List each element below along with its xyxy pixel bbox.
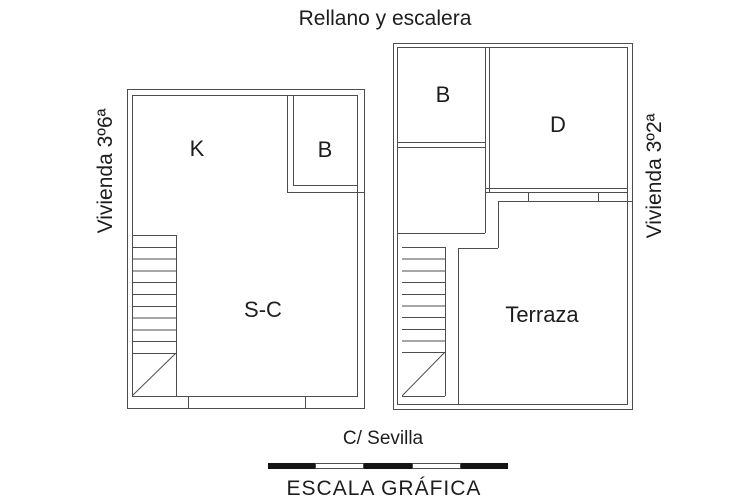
left-livingroom-label: S-C xyxy=(223,297,303,323)
left-unit-name: Vivienda 3º6ª xyxy=(94,96,118,246)
right-staircase-landing-bottom xyxy=(402,396,445,397)
left-staircase-diagonal xyxy=(132,353,176,396)
terrace-step-vertical xyxy=(498,201,499,248)
right-bath-label: B xyxy=(413,82,473,108)
left-bottom-wall-tick xyxy=(305,396,306,408)
left-staircase-side xyxy=(176,235,177,396)
right-bath-floor-inner xyxy=(397,147,485,148)
left-bath-floor-outer xyxy=(287,192,364,193)
d-room-floor-inner xyxy=(485,188,627,189)
right-staircase-side xyxy=(445,247,446,396)
left-kitchen-label: K xyxy=(167,136,227,162)
left-bath-floor-inner xyxy=(293,185,357,186)
scale-bar-segment-filled xyxy=(461,463,508,469)
right-partition-wall-outer xyxy=(485,47,486,233)
terrace-step-horizontal xyxy=(458,248,498,249)
left-staircase-steps xyxy=(132,235,176,354)
scale-bar-segment-filled xyxy=(268,463,315,469)
right-staircase-steps xyxy=(402,247,445,353)
right-staircase-diagonal xyxy=(402,352,445,396)
right-partition-wall-inner xyxy=(489,47,490,192)
scale-bar-segment-open xyxy=(315,463,364,469)
left-bath-wall-outer xyxy=(287,95,288,193)
scale-bar-segment-filled xyxy=(364,463,411,469)
d-room-floor-outer xyxy=(485,192,627,193)
terrace-label: Terraza xyxy=(482,302,602,328)
terrace-top-wall xyxy=(498,201,632,202)
landing-stair-title: Rellano y escalera xyxy=(275,7,495,31)
floor-plan: Rellano y escalera K B S-C Vivienda 3º6ª xyxy=(0,0,750,500)
right-bedroom-label: D xyxy=(528,112,588,138)
right-unit-name: Vivienda 3º2ª xyxy=(643,101,667,251)
left-bath-wall-inner xyxy=(293,95,294,185)
window-band-tick xyxy=(598,192,599,201)
scale-bar-segment-open xyxy=(412,463,461,469)
window-band-tick xyxy=(528,192,529,201)
terrace-left-wall xyxy=(458,248,459,404)
graphic-scale-title: ESCALA GRÁFICA xyxy=(264,477,504,501)
graphic-scale-bar xyxy=(268,463,508,469)
right-smallroom-floor xyxy=(397,233,485,234)
street-label: C/ Sevilla xyxy=(323,428,443,450)
left-bottom-wall-tick xyxy=(188,396,189,408)
right-bath-floor-outer xyxy=(397,142,485,143)
left-bath-label: B xyxy=(295,137,355,163)
